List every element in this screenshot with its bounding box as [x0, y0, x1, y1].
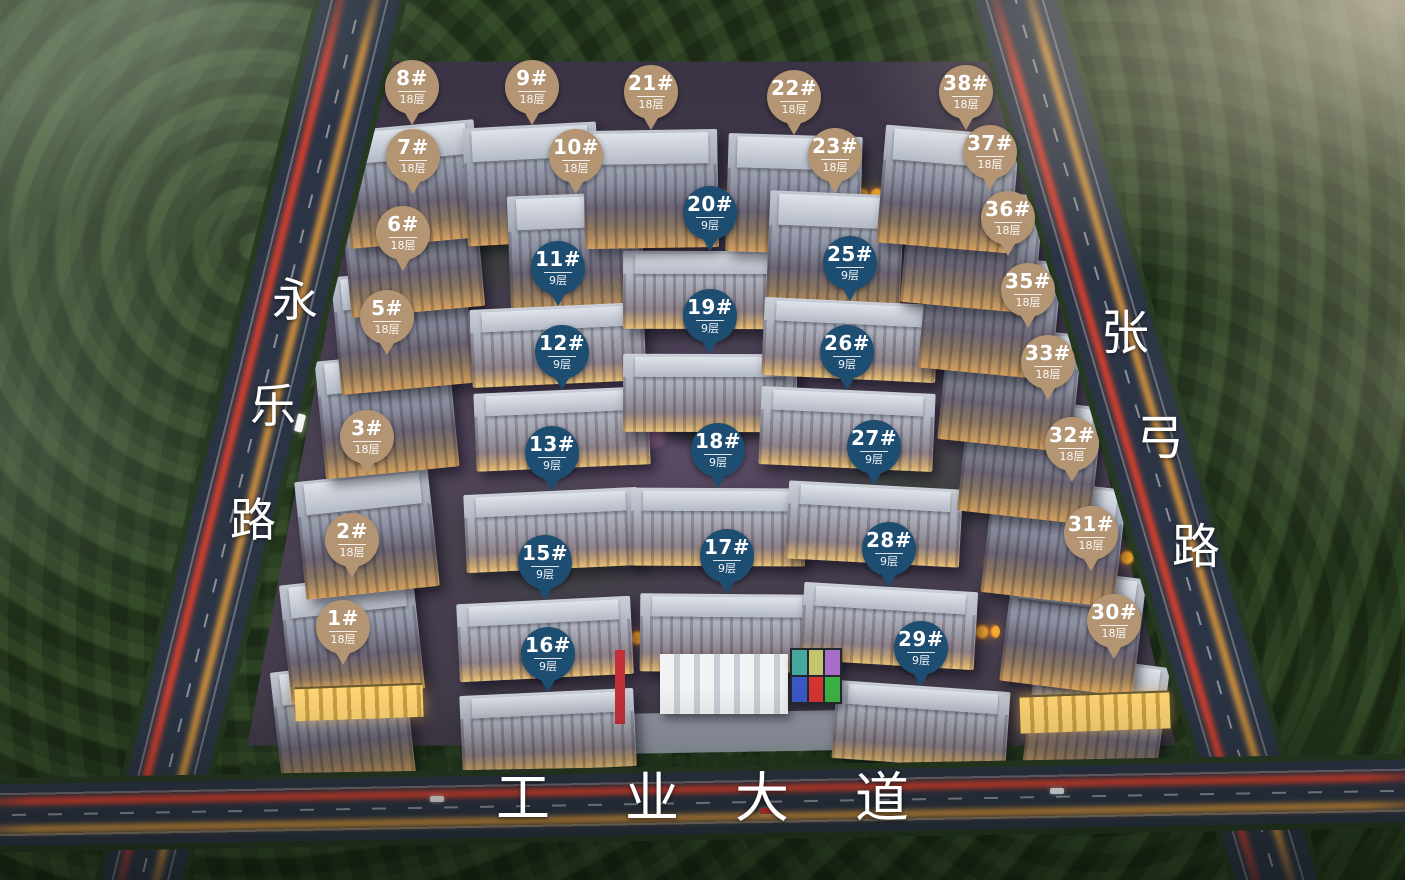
- road-name-char-bottom-3: 道: [855, 754, 909, 833]
- pin-tail-icon: [1062, 465, 1082, 482]
- pin-tail-icon: [825, 176, 845, 193]
- pin-floor-count: 9层: [718, 563, 736, 575]
- pin-head: 18#9层: [691, 423, 745, 477]
- pin-divider: [353, 441, 381, 442]
- pin-floor-count: 18层: [340, 547, 365, 559]
- kindergarten-roof-panel: [825, 650, 840, 675]
- pin-building-number: 7#: [397, 137, 429, 158]
- pin-tail-icon: [708, 471, 728, 488]
- kindergarten-roof-panel: [792, 650, 807, 675]
- pin-divider: [1077, 537, 1105, 538]
- pin-head: 16#9层: [521, 627, 575, 681]
- pin-building-number: 17#: [704, 537, 750, 558]
- pin-building-number: 23#: [812, 136, 858, 157]
- pin-building-number: 37#: [967, 133, 1013, 154]
- pin-floor-count: 9层: [536, 569, 554, 581]
- pin-divider: [544, 272, 572, 273]
- building-pin-16[interactable]: 16#9层: [519, 627, 577, 692]
- kindergarten-roof-panel: [825, 677, 840, 702]
- pin-tail-icon: [333, 648, 353, 665]
- pin-divider: [875, 553, 903, 554]
- kindergarten-roof-panel: [809, 677, 824, 702]
- building-pin-27[interactable]: 27#9层: [845, 420, 903, 485]
- pin-building-number: 12#: [539, 333, 585, 354]
- pin-building-number: 22#: [771, 78, 817, 99]
- pin-floor-count: 9层: [841, 270, 859, 282]
- pin-floor-count: 9层: [880, 556, 898, 568]
- pin-tail-icon: [566, 177, 586, 194]
- pin-divider: [952, 96, 980, 97]
- pin-divider: [976, 156, 1004, 157]
- pin-tail-icon: [377, 338, 397, 355]
- pin-floor-count: 9层: [543, 460, 561, 472]
- pin-building-number: 2#: [336, 521, 368, 542]
- kindergarten-roof-panel: [792, 677, 807, 702]
- pin-building-number: 38#: [943, 73, 989, 94]
- building-pin-20[interactable]: 20#9层: [681, 186, 739, 251]
- pin-tail-icon: [837, 373, 857, 390]
- pin-floor-count: 18层: [782, 104, 807, 116]
- road-name-char-bottom-0: 工: [496, 754, 550, 833]
- pin-divider: [836, 267, 864, 268]
- pin-divider: [907, 652, 935, 653]
- pin-divider: [562, 160, 590, 161]
- pin-building-number: 32#: [1049, 425, 1095, 446]
- pin-tail-icon: [980, 173, 1000, 190]
- pin-floor-count: 9层: [549, 275, 567, 287]
- pin-head: 35#18层: [1001, 263, 1055, 317]
- pin-divider: [1058, 448, 1086, 449]
- pin-building-number: 16#: [525, 635, 571, 656]
- building-pin-38[interactable]: 38#18层: [937, 65, 995, 130]
- road-name-char-right-1: 弓: [1136, 398, 1184, 468]
- pin-head: 30#18层: [1087, 594, 1141, 648]
- pin-head: 3#18层: [340, 410, 394, 464]
- pin-building-number: 30#: [1091, 602, 1137, 623]
- traffic-light-trail: [0, 773, 1405, 807]
- pin-building-number: 20#: [687, 194, 733, 215]
- pin-divider: [531, 566, 559, 567]
- pin-building-number: 11#: [535, 249, 581, 270]
- pin-floor-count: 18层: [996, 225, 1021, 237]
- pin-floor-count: 18层: [1102, 628, 1127, 640]
- pin-divider: [518, 91, 546, 92]
- pin-building-number: 9#: [516, 68, 548, 89]
- building-pin-21[interactable]: 21#18层: [622, 65, 680, 130]
- building-pin-19[interactable]: 19#9层: [681, 289, 739, 354]
- pin-building-number: 10#: [553, 137, 599, 158]
- traffic-light-trail: [0, 801, 1405, 835]
- pin-tail-icon: [1081, 554, 1101, 571]
- pin-head: 11#9层: [531, 241, 585, 295]
- pin-divider: [780, 101, 808, 102]
- building-pin-37[interactable]: 37#18层: [961, 125, 1019, 190]
- building-pin-11[interactable]: 11#9层: [529, 241, 587, 306]
- road-name-char-bottom-2: 大: [735, 754, 789, 833]
- pin-head: 31#18层: [1064, 506, 1118, 560]
- pin-tail-icon: [911, 669, 931, 686]
- pin-tail-icon: [403, 177, 423, 194]
- pin-divider: [713, 560, 741, 561]
- pin-building-number: 27#: [851, 428, 897, 449]
- retail-strip: [1019, 690, 1170, 733]
- building-pin-13[interactable]: 13#9层: [523, 426, 581, 491]
- pin-head: 1#18层: [316, 600, 370, 654]
- pin-building-number: 3#: [351, 418, 383, 439]
- pin-building-number: 19#: [687, 297, 733, 318]
- building-pin-22[interactable]: 22#18层: [765, 70, 823, 135]
- pin-floor-count: 18层: [375, 324, 400, 336]
- building-pin-2[interactable]: 2#18层: [323, 513, 381, 578]
- pin-floor-count: 18层: [1016, 297, 1041, 309]
- pin-divider: [1014, 294, 1042, 295]
- pin-tail-icon: [641, 113, 661, 130]
- pin-head: 10#18层: [549, 129, 603, 183]
- pin-divider: [821, 159, 849, 160]
- pin-building-number: 31#: [1068, 514, 1114, 535]
- kindergarten-track: [615, 650, 625, 724]
- pin-building-number: 29#: [898, 629, 944, 650]
- building-pin-6[interactable]: 6#18层: [374, 206, 432, 271]
- pin-divider: [1100, 625, 1128, 626]
- pin-floor-count: 18层: [400, 94, 425, 106]
- pin-head: 13#9层: [525, 426, 579, 480]
- building-pin-31[interactable]: 31#18层: [1062, 506, 1120, 571]
- building-pin-17[interactable]: 17#9层: [698, 529, 756, 594]
- pin-head: 36#18层: [981, 191, 1035, 245]
- pin-tail-icon: [1104, 642, 1124, 659]
- car: [1050, 788, 1064, 794]
- pin-floor-count: 9层: [838, 359, 856, 371]
- pin-head: 8#18层: [385, 60, 439, 114]
- pin-head: 20#9层: [683, 186, 737, 240]
- pin-head: 23#18层: [808, 128, 862, 182]
- pin-tail-icon: [840, 284, 860, 301]
- pin-building-number: 28#: [866, 530, 912, 551]
- pin-building-number: 5#: [371, 298, 403, 319]
- pin-divider: [833, 356, 861, 357]
- pin-divider: [534, 658, 562, 659]
- pin-head: 9#18层: [505, 60, 559, 114]
- pin-tail-icon: [1018, 311, 1038, 328]
- pin-head: 12#9层: [535, 325, 589, 379]
- pin-head: 32#18层: [1045, 417, 1099, 471]
- pin-floor-count: 18层: [391, 240, 416, 252]
- road-name-char-left-1: 乐: [250, 370, 296, 436]
- pin-tail-icon: [393, 254, 413, 271]
- pin-floor-count: 9层: [709, 457, 727, 469]
- pin-head: 27#9层: [847, 420, 901, 474]
- pin-head: 5#18层: [360, 290, 414, 344]
- pin-head: 2#18层: [325, 513, 379, 567]
- pin-tail-icon: [700, 337, 720, 354]
- pin-head: 19#9层: [683, 289, 737, 343]
- building-pin-33[interactable]: 33#18层: [1019, 335, 1077, 400]
- pin-divider: [696, 320, 724, 321]
- pin-head: 38#18层: [939, 65, 993, 119]
- pin-tail-icon: [342, 561, 362, 578]
- pin-divider: [637, 96, 665, 97]
- pin-tail-icon: [548, 289, 568, 306]
- pin-building-number: 36#: [985, 199, 1031, 220]
- pin-floor-count: 18层: [639, 99, 664, 111]
- pin-building-number: 25#: [827, 244, 873, 265]
- pin-divider: [696, 217, 724, 218]
- pin-tail-icon: [998, 239, 1018, 256]
- pin-head: 37#18层: [963, 125, 1017, 179]
- building-pin-9[interactable]: 9#18层: [503, 60, 561, 125]
- pin-head: 25#9层: [823, 236, 877, 290]
- building-pin-15[interactable]: 15#9层: [516, 535, 574, 600]
- pin-divider: [373, 321, 401, 322]
- building-pin-5[interactable]: 5#18层: [358, 290, 416, 355]
- pin-floor-count: 18层: [1060, 451, 1085, 463]
- pin-tail-icon: [535, 583, 555, 600]
- masterplan-aerial-render: 永乐路张弓路工业大道 1#18层2#18层3#18层5#18层6#18层7#18…: [0, 0, 1405, 880]
- pin-floor-count: 9层: [865, 454, 883, 466]
- pin-building-number: 33#: [1025, 343, 1071, 364]
- pin-floor-count: 9层: [701, 220, 719, 232]
- pin-divider: [389, 237, 417, 238]
- pin-building-number: 35#: [1005, 271, 1051, 292]
- pin-head: 22#18层: [767, 70, 821, 124]
- pin-tail-icon: [879, 570, 899, 587]
- building-pin-28[interactable]: 28#9层: [860, 522, 918, 587]
- pin-head: 21#18层: [624, 65, 678, 119]
- building-pin-30[interactable]: 30#18层: [1085, 594, 1143, 659]
- building-pin-29[interactable]: 29#9层: [892, 621, 950, 686]
- pin-tail-icon: [542, 474, 562, 491]
- road-name-char-right-0: 张: [1101, 293, 1149, 363]
- pin-divider: [994, 222, 1022, 223]
- pin-building-number: 18#: [695, 431, 741, 452]
- building-pin-26[interactable]: 26#9层: [818, 325, 876, 390]
- pin-floor-count: 9层: [539, 661, 557, 673]
- road-name-char-left-0: 永: [272, 264, 318, 330]
- pin-tail-icon: [538, 675, 558, 692]
- road-name-char-bottom-1: 业: [625, 754, 679, 833]
- pin-floor-count: 9层: [701, 323, 719, 335]
- kindergarten-color-roof: [790, 648, 842, 704]
- pin-floor-count: 18层: [823, 162, 848, 174]
- pin-head: 17#9层: [700, 529, 754, 583]
- building-pin-32[interactable]: 32#18层: [1043, 417, 1101, 482]
- pin-floor-count: 18层: [520, 94, 545, 106]
- pin-tail-icon: [700, 234, 720, 251]
- kindergarten-roof-panel: [809, 650, 824, 675]
- building-pin-7[interactable]: 7#18层: [384, 129, 442, 194]
- pin-building-number: 21#: [628, 73, 674, 94]
- pin-building-number: 8#: [396, 68, 428, 89]
- pin-head: 26#9层: [820, 325, 874, 379]
- pin-building-number: 13#: [529, 434, 575, 455]
- pin-building-number: 26#: [824, 333, 870, 354]
- pin-tail-icon: [784, 118, 804, 135]
- pin-building-number: 6#: [387, 214, 419, 235]
- pin-divider: [398, 91, 426, 92]
- kindergarten-building: [660, 654, 788, 714]
- pin-head: 28#9层: [862, 522, 916, 576]
- building-pin-8[interactable]: 8#18层: [383, 60, 441, 125]
- pin-head: 33#18层: [1021, 335, 1075, 389]
- pin-tail-icon: [864, 468, 884, 485]
- pin-divider: [329, 631, 357, 632]
- pin-floor-count: 18层: [401, 163, 426, 175]
- pin-head: 7#18层: [386, 129, 440, 183]
- retail-strip: [294, 683, 423, 721]
- road-name-char-right-2: 路: [1172, 507, 1220, 577]
- pin-floor-count: 18层: [978, 159, 1003, 171]
- pin-tail-icon: [717, 577, 737, 594]
- building-pin-23[interactable]: 23#18层: [806, 128, 864, 193]
- pin-tail-icon: [1038, 383, 1058, 400]
- pin-divider: [704, 454, 732, 455]
- pin-building-number: 15#: [522, 543, 568, 564]
- pin-tail-icon: [357, 458, 377, 475]
- pin-divider: [860, 451, 888, 452]
- pin-tail-icon: [552, 373, 572, 390]
- pin-building-number: 1#: [327, 608, 359, 629]
- pin-tail-icon: [522, 108, 542, 125]
- pin-divider: [538, 457, 566, 458]
- pin-floor-count: 18层: [355, 444, 380, 456]
- pin-head: 29#9层: [894, 621, 948, 675]
- pin-divider: [338, 544, 366, 545]
- car: [430, 796, 444, 802]
- building-pin-25[interactable]: 25#9层: [821, 236, 879, 301]
- building-pin-18[interactable]: 18#9层: [689, 423, 747, 488]
- pin-floor-count: 18层: [1079, 540, 1104, 552]
- building-pin-1[interactable]: 1#18层: [314, 600, 372, 665]
- pin-divider: [399, 160, 427, 161]
- pin-divider: [548, 356, 576, 357]
- pin-floor-count: 18层: [564, 163, 589, 175]
- pin-head: 6#18层: [376, 206, 430, 260]
- road-name-char-left-2: 路: [230, 484, 276, 550]
- pin-divider: [1034, 366, 1062, 367]
- entrance-plaza: [600, 710, 863, 755]
- building-pin-3[interactable]: 3#18层: [338, 410, 396, 475]
- pin-floor-count: 9层: [553, 359, 571, 371]
- building-pin-35[interactable]: 35#18层: [999, 263, 1057, 328]
- pin-head: 15#9层: [518, 535, 572, 589]
- building-pin-10[interactable]: 10#18层: [547, 129, 605, 194]
- building-pin-36[interactable]: 36#18层: [979, 191, 1037, 256]
- pin-tail-icon: [402, 108, 422, 125]
- pin-floor-count: 9层: [912, 655, 930, 667]
- pin-floor-count: 18层: [1036, 369, 1061, 381]
- pin-floor-count: 18层: [954, 99, 979, 111]
- building-pin-12[interactable]: 12#9层: [533, 325, 591, 390]
- pin-floor-count: 18层: [331, 634, 356, 646]
